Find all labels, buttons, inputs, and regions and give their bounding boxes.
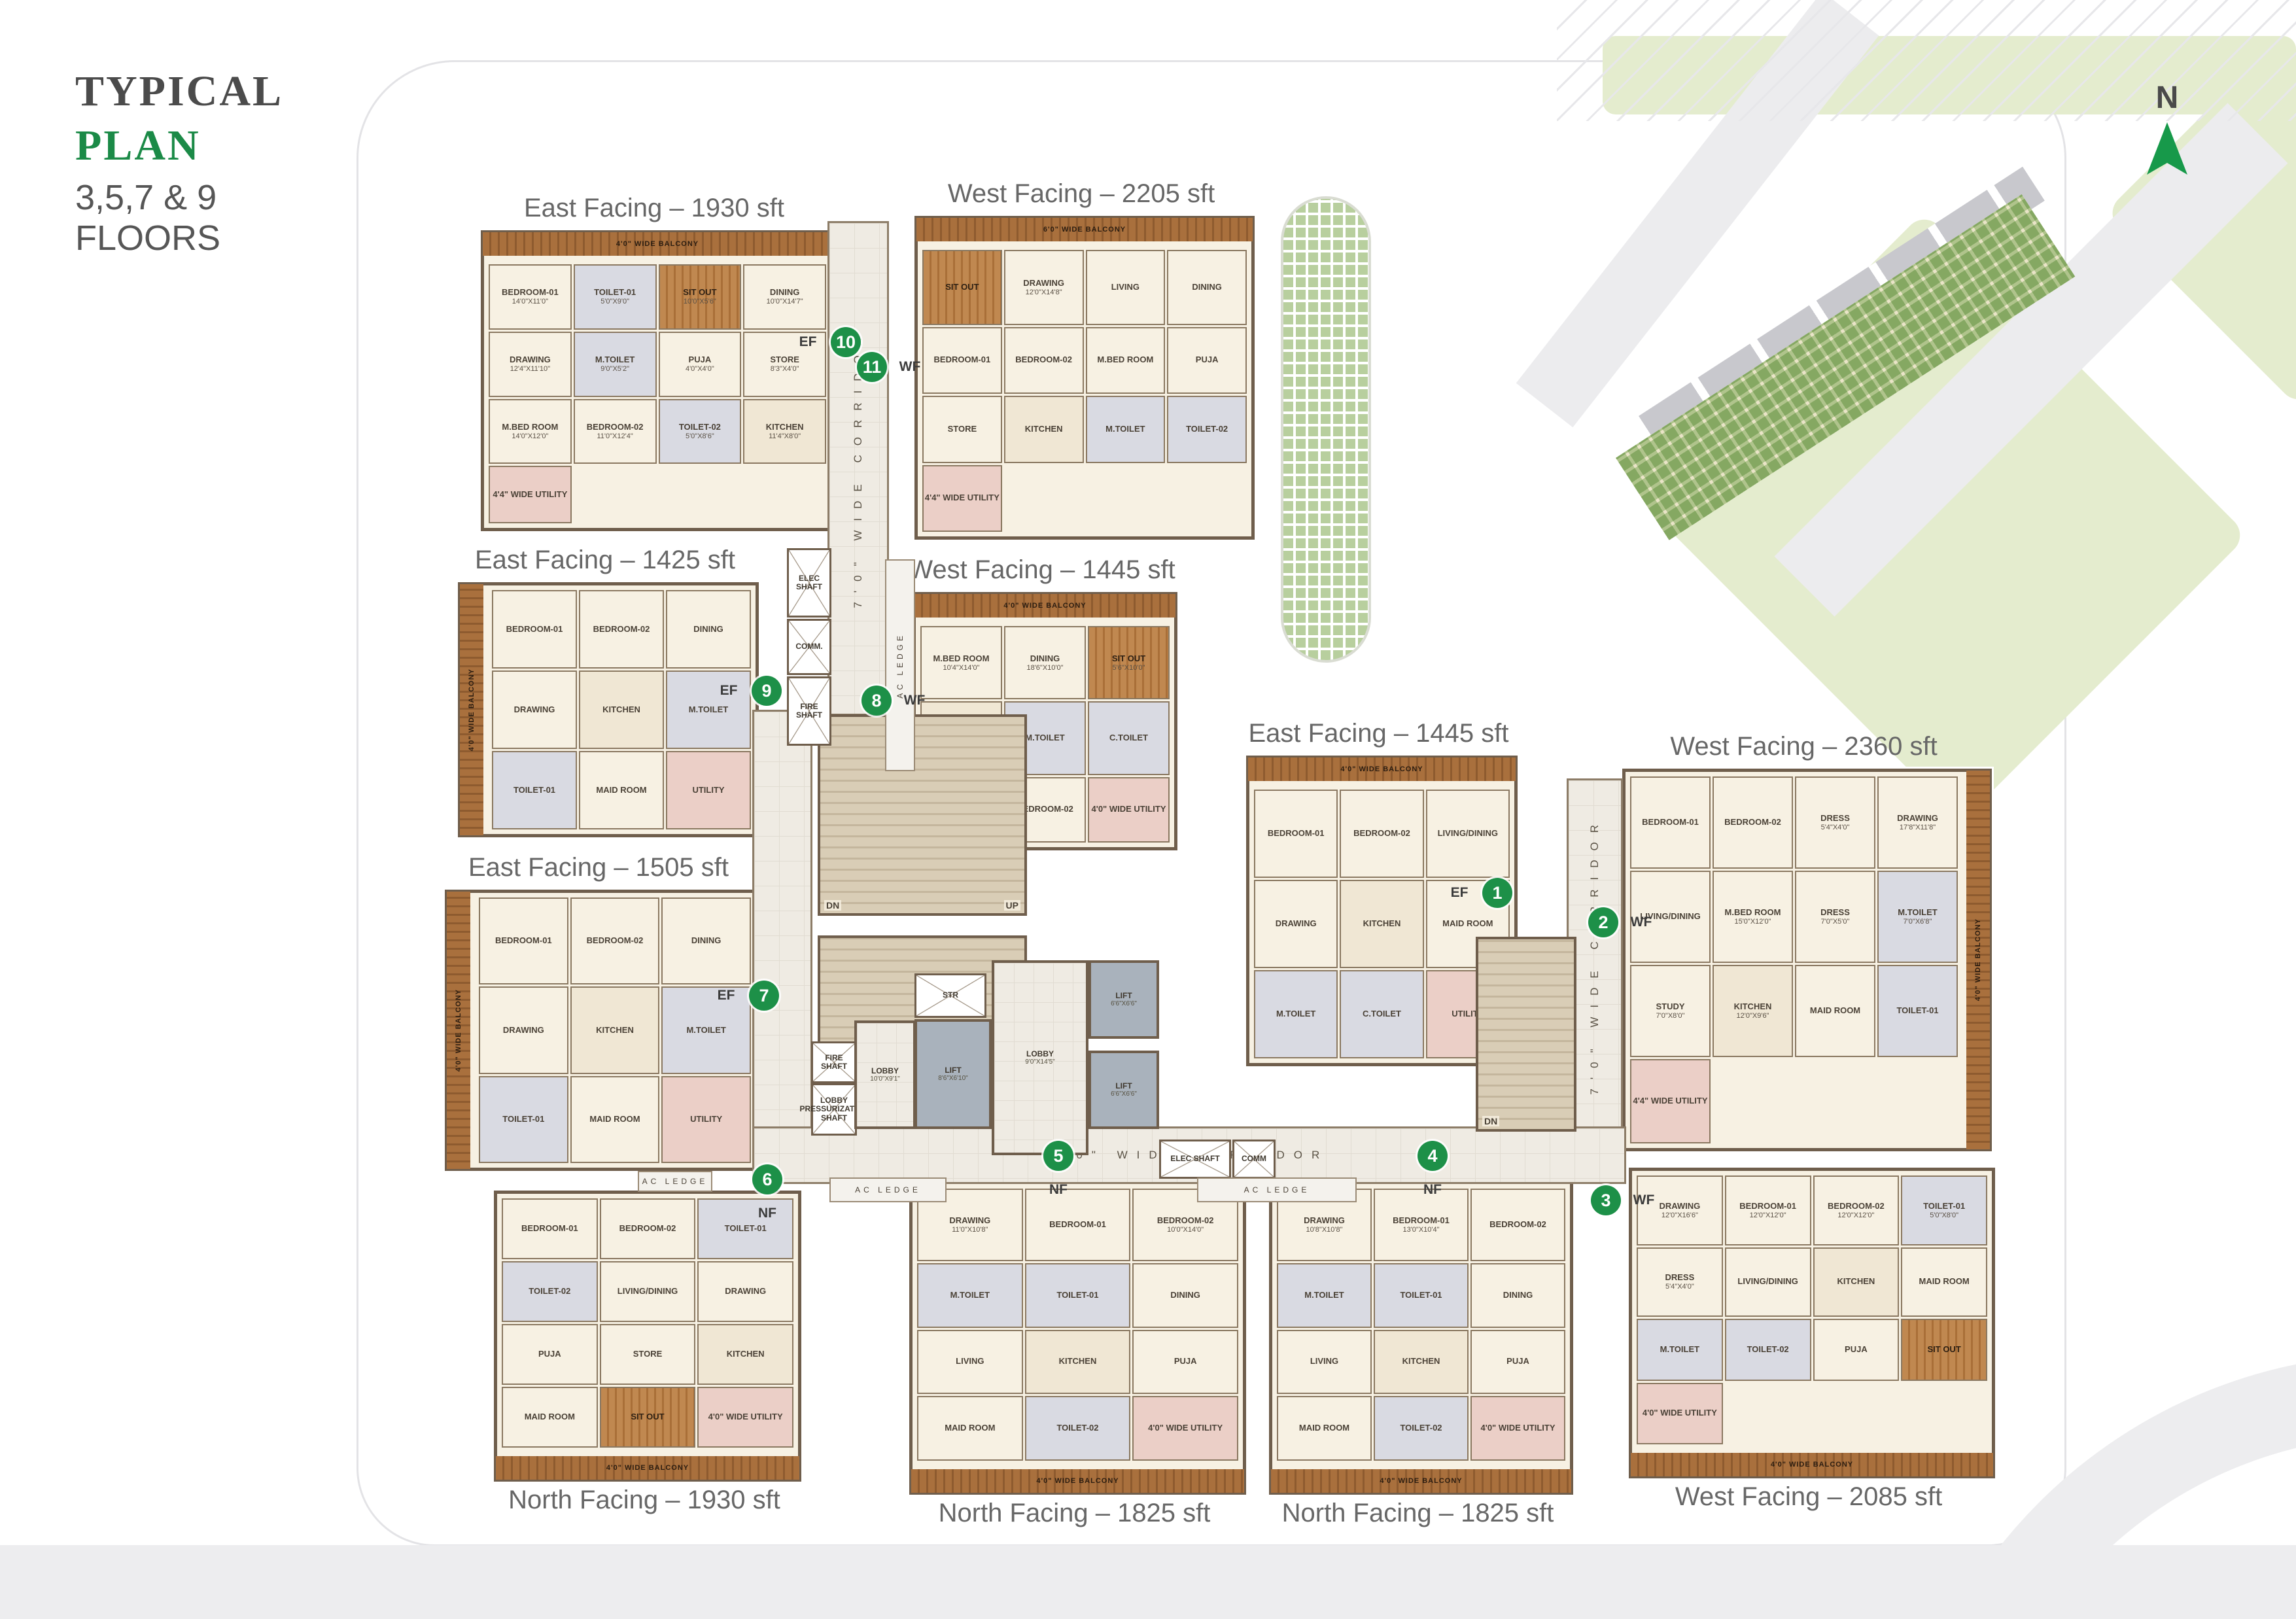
room-toilet-01: TOILET-01	[1374, 1263, 1469, 1328]
room-name: DRAWING	[1659, 1202, 1700, 1211]
entry-marker-7: 7	[749, 981, 779, 1011]
room-name: TOILET-01	[594, 288, 636, 298]
room-name: TOILET-01	[502, 1115, 544, 1124]
room-name: BEDROOM-02	[1724, 818, 1781, 827]
room-4-4-wide-utility: 4'4" WIDE UTILITY	[1630, 1059, 1711, 1143]
unit-north-1930: 4'0" WIDE BALCONYBEDROOM-01BEDROOM-02TOI…	[494, 1191, 801, 1482]
room-sit-out: SIT OUT10'0"X5'6"	[659, 264, 742, 330]
lift-lift: LIFT6'6"X6'6"	[1088, 960, 1159, 1039]
room-name: 4'0" WIDE UTILITY	[1481, 1423, 1556, 1433]
balcony-top-edge: 4'0" WIDE BALCONY	[483, 232, 832, 256]
room-kitchen: KITCHEN11'4"X8'0"	[743, 399, 826, 464]
shaft-str: STR	[914, 973, 986, 1018]
room-m-toilet: M.TOILET	[1277, 1263, 1372, 1328]
entry-facing-tag-8: WF	[904, 693, 926, 708]
room-maid-room: MAID ROOM	[1795, 965, 1875, 1057]
core-cell-label: LOBBY	[871, 1067, 899, 1075]
unit-north-1825-b: 4'0" WIDE BALCONYDRAWING10'8"X10'8"BEDRO…	[1269, 1181, 1573, 1495]
balcony-label: 4'0" WIDE BALCONY	[1340, 765, 1423, 773]
room-m-bed-room: M.BED ROOM15'0"X12'0"	[1713, 871, 1793, 963]
entry-marker-number: 3	[1601, 1191, 1610, 1211]
north-indicator: N	[2131, 80, 2203, 179]
room-drawing: DRAWING12'4"X11'10"	[489, 332, 572, 397]
room-bedroom-01: BEDROOM-0113'0"X10'4"	[1374, 1189, 1469, 1261]
room-dimensions: 5'0"X8'0"	[1930, 1211, 1958, 1219]
room-name: LIVING/DINING	[617, 1287, 678, 1297]
balcony-label: 6'0" WIDE BALCONY	[1043, 226, 1126, 234]
room-toilet-01: TOILET-015'0"X8'0"	[1901, 1175, 1987, 1245]
room-drawing: DRAWING12'0"X14'8"	[1004, 250, 1084, 325]
room-dimensions: 7'0"X6'8"	[1904, 918, 1932, 926]
room-m-toilet: M.TOILET	[1254, 970, 1338, 1058]
core-cell-label: STR	[943, 991, 958, 1000]
room-name: BEDROOM-02	[1157, 1216, 1214, 1226]
room-m-bed-room: M.BED ROOM	[1086, 327, 1166, 394]
room-sit-out: SIT OUT	[1901, 1319, 1987, 1380]
unit-label-west-2360: West Facing – 2360 sft	[1670, 732, 1937, 761]
room-toilet-01: TOILET-01	[492, 751, 577, 829]
room-name: DINING	[770, 288, 800, 298]
core-cell-label: COMM	[1242, 1155, 1266, 1163]
ac-ledge-label: AC LEDGE	[855, 1185, 921, 1194]
room-name: MAID ROOM	[945, 1423, 995, 1433]
unit-label-west-2085: West Facing – 2085 sft	[1675, 1482, 1942, 1512]
room-m-toilet: M.TOILET9'0"X5'2"	[574, 332, 657, 397]
room-name: BEDROOM-01	[1393, 1216, 1450, 1226]
room-name: KITCHEN	[1837, 1277, 1875, 1287]
room-name: KITCHEN	[1734, 1002, 1772, 1012]
room-kitchen: KITCHEN	[1340, 880, 1423, 968]
room-4-0-wide-utility: 4'0" WIDE UTILITY	[1088, 777, 1170, 843]
ac-ledge-4: AC LEDGE	[638, 1171, 712, 1192]
core-cell-dimensions: 6'6"X6'6"	[1111, 1090, 1137, 1098]
room-bedroom-02: BEDROOM-02	[1340, 790, 1423, 878]
room-dining: DINING	[1167, 250, 1247, 325]
room-dimensions: 15'0"X12'0"	[1734, 918, 1771, 926]
room-dimensions: 7'0"X5'0"	[1821, 918, 1850, 926]
room-name: PUJA	[538, 1349, 561, 1359]
balcony-label: 4'0" WIDE BALCONY	[1036, 1477, 1119, 1485]
core-cell-label: ELEC SHAFT	[1170, 1155, 1219, 1163]
room-toilet-01: TOILET-01	[1877, 965, 1958, 1057]
room-kitchen: KITCHEN	[1004, 396, 1084, 462]
unit-label-west-1445: West Facing – 1445 sft	[908, 555, 1175, 585]
balcony-top-edge: 4'0" WIDE BALCONY	[914, 594, 1175, 618]
lobby-lobby: LOBBY10'0"X9'1"	[854, 1020, 916, 1129]
room-kitchen: KITCHEN12'0"X9'6"	[1713, 965, 1793, 1057]
unit-rooms: DRAWING12'0"X16'6"BEDROOM-0112'0"X12'0"B…	[1635, 1174, 1989, 1446]
balcony-top-edge: 4'0" WIDE BALCONY	[1248, 757, 1516, 781]
room-name: SIT OUT	[945, 283, 979, 292]
room-name: PUJA	[1196, 355, 1219, 365]
entry-facing-tag-1: EF	[1451, 885, 1469, 901]
room-name: M.TOILET	[1276, 1009, 1315, 1019]
core-cell-label: ELEC SHAFT	[789, 574, 829, 591]
stair-down-label: DN	[824, 900, 841, 911]
room-dimensions: 9'0"X5'2"	[600, 365, 629, 373]
room-dimensions: 5'4"X4'0"	[1821, 824, 1850, 831]
entry-marker-11: 11	[857, 352, 887, 382]
room-name: BEDROOM-01	[1049, 1220, 1106, 1230]
room-dimensions: 11'0"X10'8"	[952, 1226, 988, 1234]
entry-marker-number: 6	[762, 1170, 772, 1190]
room-sit-out: SIT OUT5'6"X10'0"	[1088, 626, 1170, 699]
room-name: BEDROOM-01	[506, 625, 563, 635]
room-puja: PUJA	[1470, 1330, 1565, 1395]
balcony-top-edge: 6'0" WIDE BALCONY	[916, 218, 1253, 241]
room-bedroom-02: BEDROOM-02	[1470, 1189, 1565, 1261]
room-name: DINING	[1192, 283, 1222, 292]
unit-east-1425: 4'0" WIDE BALCONYBEDROOM-01BEDROOM-02DIN…	[458, 582, 759, 837]
room-name: DRAWING	[1897, 814, 1938, 824]
room-name: SIT OUT	[683, 288, 716, 298]
entry-marker-8: 8	[861, 686, 892, 716]
unit-label-east-1445: East Facing – 1445 sft	[1248, 719, 1508, 748]
room-name: PUJA	[1506, 1357, 1529, 1367]
room-bedroom-02: BEDROOM-02	[570, 897, 660, 984]
ac-ledge-2: AC LEDGE	[829, 1177, 947, 1202]
room-name: M.TOILET	[950, 1291, 990, 1300]
room-name: BEDROOM-02	[587, 423, 644, 432]
room-name: MAID ROOM	[1810, 1006, 1860, 1016]
room-c-toilet: C.TOILET	[1088, 701, 1170, 775]
room-name: STORE	[633, 1349, 663, 1359]
unit-label-east-1505: East Facing – 1505 sft	[468, 853, 729, 882]
room-name: TOILET-01	[1056, 1291, 1098, 1300]
unit-east-1505: 4'0" WIDE BALCONYBEDROOM-01BEDROOM-02DIN…	[445, 890, 759, 1171]
room-name: M.TOILET	[1898, 908, 1937, 918]
room-bedroom-02: BEDROOM-02	[1713, 776, 1793, 869]
room-name: M.BED ROOM	[933, 654, 990, 664]
room-toilet-01: TOILET-01	[1025, 1263, 1131, 1328]
room-toilet-01: TOILET-01	[479, 1076, 568, 1163]
room-name: STORE	[948, 425, 977, 434]
room-name: DRESS	[1820, 908, 1850, 918]
title-line-plan: PLAN	[75, 123, 283, 168]
core-cell-label: LIFT	[1115, 992, 1132, 1000]
title-line-floors: FLOORS	[75, 220, 283, 257]
room-name: BEDROOM-02	[587, 936, 644, 946]
room-name: DRAWING	[1023, 279, 1064, 288]
room-name: KITCHEN	[727, 1349, 765, 1359]
room-dimensions: 13'0"X10'4"	[1402, 1226, 1439, 1234]
ac-ledge-label: AC LEDGE	[1244, 1185, 1310, 1194]
room-name: UTILITY	[692, 786, 724, 795]
unit-east-1930: 4'0" WIDE BALCONYBEDROOM-0114'0"X11'0"TO…	[481, 230, 834, 531]
balcony-left-edge: 4'0" WIDE BALCONY	[460, 584, 483, 835]
room-name: 4'0" WIDE UTILITY	[1148, 1423, 1223, 1433]
room-name: KITCHEN	[1059, 1357, 1097, 1367]
room-name: LIVING	[956, 1357, 984, 1367]
room-dimensions: 10'4"X14'0"	[943, 664, 979, 672]
entry-marker-number: 5	[1053, 1146, 1063, 1166]
room-maid-room: MAID ROOM	[502, 1387, 598, 1448]
room-bedroom-02: BEDROOM-02	[600, 1198, 696, 1259]
room-name: TOILET-01	[725, 1224, 767, 1234]
north-arrow-icon	[2147, 122, 2187, 176]
room-dimensions: 12'4"X11'10"	[510, 365, 550, 373]
room-name: LIVING	[1310, 1357, 1338, 1367]
entry-marker-number: 7	[759, 986, 769, 1006]
room-dimensions: 17'8"X11'8"	[1900, 824, 1936, 831]
room-dimensions: 10'0"X14'7"	[767, 298, 803, 305]
room-name: DINING	[691, 936, 722, 946]
room-name: BEDROOM-01	[1739, 1202, 1796, 1211]
entry-marker-number: 9	[761, 681, 771, 701]
room-dimensions: 10'8"X10'8"	[1306, 1226, 1342, 1234]
entry-marker-9: 9	[752, 676, 782, 706]
room-dimensions: 7'0"X8'0"	[1656, 1012, 1685, 1020]
balcony-right-edge: 4'0" WIDE BALCONY	[1966, 771, 1990, 1149]
room-name: 4'0" WIDE UTILITY	[1092, 805, 1166, 814]
room-living: LIVING	[1277, 1330, 1372, 1395]
balcony-bottom-edge: 4'0" WIDE BALCONY	[1631, 1453, 1993, 1476]
room-name: MAID ROOM	[525, 1412, 575, 1422]
room-maid-room: MAID ROOM	[579, 751, 664, 829]
room-living: LIVING	[917, 1330, 1023, 1395]
room-name: M.TOILET	[1660, 1345, 1699, 1355]
room-name: M.TOILET	[1304, 1291, 1344, 1300]
room-toilet-01: TOILET-01	[697, 1198, 793, 1259]
room-4-0-wide-utility: 4'0" WIDE UTILITY	[697, 1387, 793, 1448]
room-4-0-wide-utility: 4'0" WIDE UTILITY	[1637, 1383, 1723, 1444]
room-maid-room: MAID ROOM	[917, 1396, 1023, 1461]
room-name: TOILET-02	[1747, 1345, 1789, 1355]
room-name: TOILET-01	[1400, 1291, 1442, 1300]
balcony-label: 4'0" WIDE BALCONY	[1974, 918, 1982, 1001]
entry-marker-6: 6	[752, 1164, 782, 1194]
staircase-1: DNUP	[818, 714, 1027, 916]
entry-marker-number: 10	[836, 332, 856, 353]
room-name: BEDROOM-02	[1015, 355, 1072, 365]
room-name: SIT OUT	[1927, 1345, 1960, 1355]
room-name: SIT OUT	[631, 1412, 664, 1422]
room-dimensions: 12'0"X16'6"	[1661, 1211, 1698, 1219]
room-kitchen: KITCHEN	[570, 986, 660, 1073]
room-name: TOILET-02	[1056, 1423, 1098, 1433]
room-m-toilet: M.TOILET	[917, 1263, 1023, 1328]
room-utility: UTILITY	[666, 751, 751, 829]
unit-label-east-1425: East Facing – 1425 sft	[475, 546, 735, 575]
room-m-bed-room: M.BED ROOM10'4"X14'0"	[920, 626, 1002, 699]
unit-rooms: DRAWING10'8"X10'8"BEDROOM-0113'0"X10'4"B…	[1275, 1187, 1567, 1463]
room-maid-room: MAID ROOM	[570, 1076, 660, 1163]
corridor-2	[752, 710, 812, 1136]
core-cell-label: FIRE SHAFT	[789, 703, 829, 720]
core-cell-label: LOBBY	[1026, 1050, 1054, 1058]
room-name: 4'0" WIDE UTILITY	[1643, 1408, 1717, 1418]
room-dimensions: 5'0"X8'6"	[686, 432, 714, 440]
room-dimensions: 8'3"X4'0"	[771, 365, 799, 373]
stair-down-label: DN	[1482, 1116, 1499, 1126]
room-name: MAID ROOM	[1919, 1277, 1969, 1287]
entry-facing-tag-3: WF	[1633, 1192, 1655, 1208]
room-drawing: DRAWING17'8"X11'8"	[1877, 776, 1958, 869]
room-kitchen: KITCHEN	[1813, 1247, 1900, 1317]
floor-plan-canvas: TYPICAL PLAN 3,5,7 & 9 FLOORS N 4'0" WID…	[0, 0, 2296, 1619]
room-name: M.TOILET	[689, 705, 728, 715]
balcony-label: 4'0" WIDE BALCONY	[606, 1464, 689, 1472]
room-name: DINING	[1170, 1291, 1200, 1300]
room-dimensions: 12'0"X9'6"	[1737, 1012, 1769, 1020]
room-name: BEDROOM-02	[619, 1224, 676, 1234]
room-m-bed-room: M.BED ROOM14'0"X12'0"	[489, 399, 572, 464]
balcony-label: 4'0" WIDE BALCONY	[616, 240, 699, 248]
room-dimensions: 14'0"X12'0"	[512, 432, 548, 440]
tree-court	[1281, 196, 1371, 663]
room-puja: PUJA	[1132, 1330, 1238, 1395]
room-maid-room: MAID ROOM	[1901, 1247, 1987, 1317]
room-name: M.BED ROOM	[502, 423, 558, 432]
room-dimensions: 10'0"X5'6"	[684, 298, 716, 305]
core-cell-dimensions: 9'0"X14'5"	[1025, 1058, 1054, 1066]
room-bedroom-01: BEDROOM-0114'0"X11'0"	[489, 264, 572, 330]
room-name: UTILITY	[690, 1115, 722, 1124]
unit-west-2205: 6'0" WIDE BALCONYSIT OUTDRAWING12'0"X14'…	[914, 216, 1255, 540]
room-sit-out: SIT OUT	[922, 250, 1002, 325]
unit-label-east-1930: East Facing – 1930 sft	[524, 194, 784, 223]
core-cell-dimensions: 6'6"X6'6"	[1111, 1000, 1137, 1007]
room-name: M.TOILET	[686, 1026, 725, 1036]
room-name: DINING	[1503, 1291, 1533, 1300]
entry-facing-tag-11: WF	[899, 359, 921, 375]
room-name: TOILET-01	[513, 786, 555, 795]
unit-label-north-1825-a: North Facing – 1825 sft	[939, 1499, 1211, 1528]
balcony-label: 4'0" WIDE BALCONY	[1771, 1461, 1853, 1469]
room-dining: DINING	[661, 897, 751, 984]
plan-title: TYPICAL PLAN 3,5,7 & 9 FLOORS	[75, 69, 283, 257]
balcony-label: 4'0" WIDE BALCONY	[455, 989, 462, 1071]
shaft-fire-shaft: FIRE SHAFT	[811, 1041, 857, 1083]
entry-marker-number: 1	[1492, 883, 1502, 903]
room-bedroom-02: BEDROOM-02	[579, 590, 664, 669]
unit-west-2085: 4'0" WIDE BALCONYDRAWING12'0"X16'6"BEDRO…	[1629, 1168, 1995, 1478]
unit-label-west-2205: West Facing – 2205 sft	[948, 179, 1215, 209]
lobby-lobby: LOBBY9'0"X14'5"	[992, 960, 1088, 1155]
unit-north-1825-a: 4'0" WIDE BALCONYDRAWING11'0"X10'8"BEDRO…	[909, 1181, 1246, 1495]
room-dress: DRESS5'4"X4'0"	[1637, 1247, 1723, 1317]
room-4-4-wide-utility: 4'4" WIDE UTILITY	[922, 465, 1002, 532]
room-name: DRAWING	[725, 1287, 766, 1297]
room-drawing: DRAWING	[1254, 880, 1338, 968]
entry-marker-5: 5	[1043, 1141, 1073, 1171]
room-name: DRAWING	[503, 1026, 544, 1036]
room-name: C.TOILET	[1363, 1009, 1401, 1019]
balcony-label: 4'0" WIDE BALCONY	[468, 669, 476, 751]
room-name: PUJA	[1174, 1357, 1197, 1367]
room-sit-out: SIT OUT	[600, 1387, 696, 1448]
entry-facing-tag-2: WF	[1631, 914, 1652, 930]
room-living-dining: LIVING/DINING	[1725, 1247, 1811, 1317]
lift-lift: LIFT6'6"X6'6"	[1088, 1051, 1159, 1129]
room-name: C.TOILET	[1109, 733, 1148, 743]
room-dimensions: 12'0"X12'0"	[1750, 1211, 1786, 1219]
room-dining: DINING	[1470, 1263, 1565, 1328]
room-name: M.BED ROOM	[1725, 908, 1781, 918]
room-name: 4'4" WIDE UTILITY	[1633, 1096, 1708, 1106]
balcony-label: 4'0" WIDE BALCONY	[1380, 1477, 1462, 1485]
entry-marker-1: 1	[1482, 878, 1512, 908]
room-name: M.BED ROOM	[1097, 355, 1153, 365]
room-drawing: DRAWING12'0"X16'6"	[1637, 1175, 1723, 1245]
room-name: DINING	[693, 625, 723, 635]
room-name: DRESS	[1665, 1273, 1694, 1283]
room-bedroom-01: BEDROOM-01	[492, 590, 577, 669]
room-store: STORE	[922, 396, 1002, 462]
room-bedroom-02: BEDROOM-02	[1004, 327, 1084, 394]
entry-marker-number: 11	[863, 357, 882, 377]
entry-marker-2: 2	[1588, 907, 1618, 937]
shaft-comm: COMM	[1232, 1140, 1276, 1179]
room-dimensions: 14'0"X11'0"	[512, 298, 548, 305]
room-name: LIVING/DINING	[1438, 829, 1498, 839]
room-dining: DINING18'6"X10'0"	[1004, 626, 1086, 699]
shaft-fire-shaft: FIRE SHAFT	[787, 676, 831, 746]
room-name: BEDROOM-01	[521, 1224, 578, 1234]
room-name: BEDROOM-02	[1489, 1220, 1546, 1230]
balcony-bottom-edge: 4'0" WIDE BALCONY	[911, 1469, 1244, 1493]
room-name: DRAWING	[949, 1216, 990, 1226]
core-cell-label: LIFT	[945, 1066, 961, 1075]
unit-rooms: BEDROOM-01BEDROOM-02TOILET-01TOILET-02LI…	[500, 1196, 795, 1450]
entry-facing-tag-4: NF	[1423, 1182, 1442, 1198]
title-line-typical: TYPICAL	[75, 69, 283, 114]
room-drawing: DRAWING	[492, 670, 577, 749]
room-name: BEDROOM-02	[1353, 829, 1410, 839]
room-living-dining: LIVING/DINING	[600, 1261, 696, 1322]
room-toilet-02: TOILET-02	[1025, 1396, 1131, 1461]
room-name: KITCHEN	[596, 1026, 634, 1036]
ac-ledge-label: AC LEDGE	[896, 633, 905, 699]
unit-rooms: BEDROOM-01BEDROOM-02DRESS5'4"X4'0"DRAWIN…	[1628, 775, 1960, 1145]
room-living: LIVING	[1086, 250, 1166, 325]
room-name: BEDROOM-02	[593, 625, 650, 635]
north-label: N	[2131, 80, 2203, 116]
room-dimensions: 5'0"X9'0"	[600, 298, 629, 305]
room-m-toilet: M.TOILET	[1637, 1319, 1723, 1380]
room-kitchen: KITCHEN	[1025, 1330, 1131, 1395]
entry-facing-tag-9: EF	[720, 683, 738, 699]
room-name: BEDROOM-01	[1642, 818, 1699, 827]
room-name: BEDROOM-01	[495, 936, 552, 946]
room-name: KITCHEN	[1025, 425, 1063, 434]
room-dimensions: 10'0"X14'0"	[1167, 1226, 1204, 1234]
room-name: 4'4" WIDE UTILITY	[925, 493, 1000, 503]
room-bedroom-01: BEDROOM-01	[922, 327, 1002, 394]
room-name: DRAWING	[1304, 1216, 1345, 1226]
shaft-elec-shaft: ELEC SHAFT	[787, 548, 831, 618]
shaft-elec-shaft: ELEC SHAFT	[1159, 1140, 1231, 1179]
room-dining: DINING10'0"X14'7"	[743, 264, 826, 330]
room-toilet-01: TOILET-015'0"X9'0"	[574, 264, 657, 330]
room-dimensions: 5'6"X10'0"	[1113, 664, 1145, 672]
room-kitchen: KITCHEN	[697, 1324, 793, 1385]
room-maid-room: MAID ROOM	[1277, 1396, 1372, 1461]
room-bedroom-01: BEDROOM-01	[1630, 776, 1711, 869]
room-dimensions: 12'0"X12'0"	[1837, 1211, 1874, 1219]
room-m-toilet: M.TOILET7'0"X6'8"	[1877, 871, 1958, 963]
room-name: KITCHEN	[602, 705, 640, 715]
balcony-bottom-edge: 4'0" WIDE BALCONY	[1271, 1469, 1571, 1493]
room-name: 4'4" WIDE UTILITY	[493, 490, 567, 500]
room-name: PUJA	[1845, 1345, 1868, 1355]
room-name: BEDROOM-02	[1828, 1202, 1885, 1211]
room-puja: PUJA4'0"X4'0"	[659, 332, 742, 397]
room-m-toilet: M.TOILET	[666, 670, 751, 749]
entry-marker-3: 3	[1591, 1185, 1621, 1215]
room-name: DINING	[1030, 654, 1060, 664]
room-drawing: DRAWING	[697, 1261, 793, 1322]
